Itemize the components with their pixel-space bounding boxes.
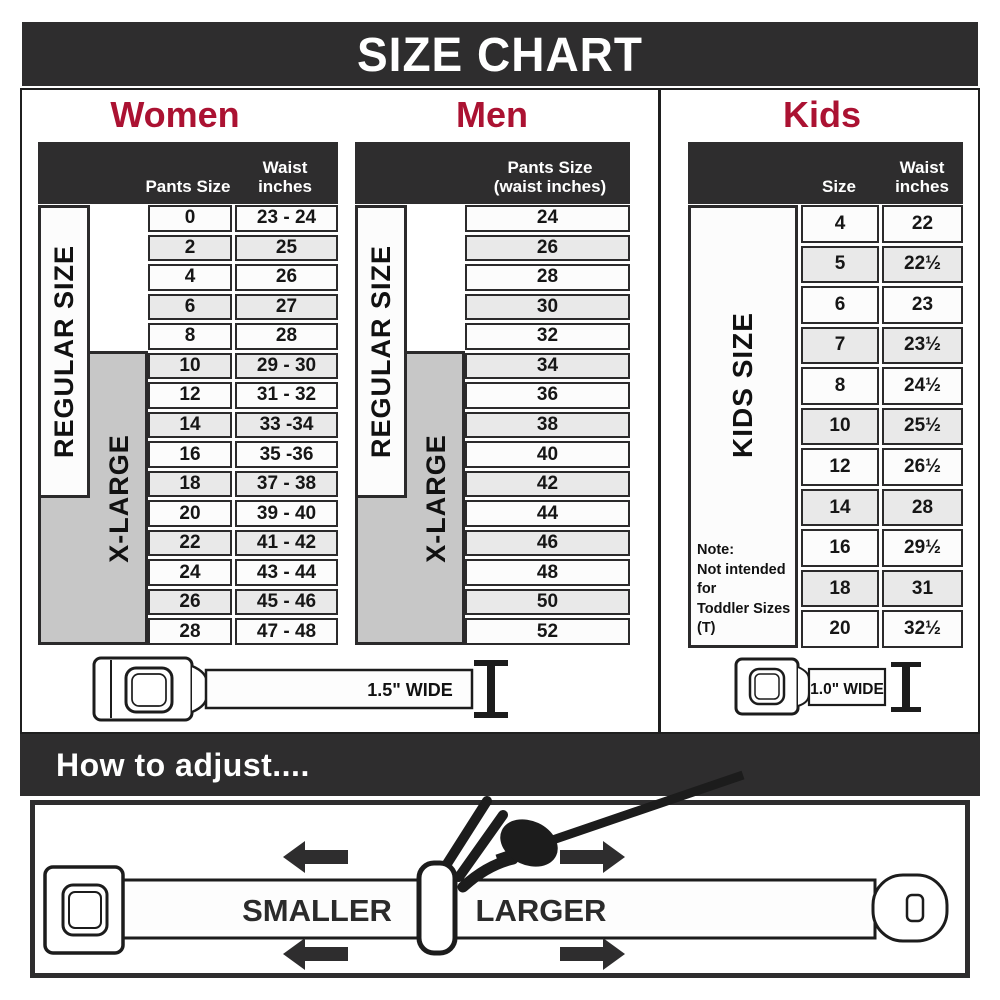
size-cell: 7 [801,327,879,365]
belt-strap: 1.0" WIDE [809,669,885,705]
women-pants-size-header: Pants Size [138,177,238,197]
arrow-left-icon [283,938,348,970]
pants-size-cell: 34 [465,353,630,380]
men-table-row: 36 [465,382,630,409]
waist-cell: 41 - 42 [235,530,338,557]
women-table-row: 20 39 - 40 [148,500,338,527]
waist-cell: 31 [882,570,963,608]
pants-size-cell: 20 [148,500,232,527]
pants-size-cell: 12 [148,382,232,409]
waist-cell: 29½ [882,529,963,567]
men-table-row: 40 [465,441,630,468]
waist-cell: 39 - 40 [235,500,338,527]
pants-size-cell: 0 [148,205,232,232]
men-table-rows: 24 26 28 30 32 34 36 38 40 42 44 46 48 5… [465,205,630,645]
women-table-row: 22 41 - 42 [148,530,338,557]
size-cell: 16 [801,529,879,567]
pants-size-cell: 2 [148,235,232,262]
waist-cell: 45 - 46 [235,589,338,616]
pants-size-cell: 38 [465,412,630,439]
adjust-illustration: SMALLER LARGER [35,767,965,973]
pants-size-cell: 8 [148,323,232,350]
size-cell: 14 [801,489,879,527]
waist-cell: 28 [235,323,338,350]
size-cell: 12 [801,448,879,486]
men-table-row: 38 [465,412,630,439]
size-cell: 20 [801,610,879,648]
kids-size-label: KIDS SIZE [688,205,798,565]
men-xlarge-label: X-LARGE [407,351,465,645]
waist-cell: 29 - 30 [235,353,338,380]
pants-size-cell: 14 [148,412,232,439]
waist-cell: 31 - 32 [235,382,338,409]
pants-size-cell: 24 [148,559,232,586]
kids-title: Kids [722,94,922,136]
kids-table-row: 14 28 [801,489,963,527]
men-table-row: 52 [465,618,630,645]
kids-table-row: 18 31 [801,570,963,608]
men-table-row: 26 [465,235,630,262]
waist-cell: 25½ [882,408,963,446]
pants-size-cell: 36 [465,382,630,409]
pants-size-cell: 48 [465,559,630,586]
pants-size-cell: 44 [465,500,630,527]
kids-table-row: 5 22½ [801,246,963,284]
seatbelt-buckle-icon [45,867,123,953]
kids-belt-illustration: 1.0" WIDE [733,655,948,721]
larger-label: LARGER [476,893,607,928]
women-table-row: 18 37 - 38 [148,471,338,498]
kids-belt-width-label: 1.0" WIDE [810,681,884,698]
seatbelt-buckle-icon [94,658,207,720]
men-title: Men [392,94,592,136]
women-table-row: 28 47 - 48 [148,618,338,645]
size-chart-banner: SIZE CHART [22,22,978,86]
width-ibeam-icon [891,662,921,712]
waist-cell: 25 [235,235,338,262]
men-pants-size-header: Pants Size (waist inches) [475,158,625,197]
kids-table-row: 16 29½ [801,529,963,567]
pants-size-cell: 24 [465,205,630,232]
waist-cell: 23½ [882,327,963,365]
women-table-header: Pants Size Waist inches [38,142,338,204]
waist-cell: 35 -36 [235,441,338,468]
waist-cell: 22½ [882,246,963,284]
kids-table-row: 4 22 [801,205,963,243]
pants-size-cell: 32 [465,323,630,350]
women-title: Women [75,94,275,136]
pants-size-cell: 30 [465,294,630,321]
pants-size-cell: 28 [465,264,630,291]
women-table-row: 26 45 - 46 [148,589,338,616]
women-xlarge-label: X-LARGE [90,351,148,645]
women-table-row: 8 28 [148,323,338,350]
adjust-illustration-box: SMALLER LARGER [30,800,970,978]
pants-size-cell: 16 [148,441,232,468]
width-ibeam-icon [474,660,508,718]
women-table-row: 12 31 - 32 [148,382,338,409]
kids-table-rows: 4 22 5 22½ 6 23 7 23½ 8 24½ 10 25½ 12 26… [801,205,963,648]
size-cell: 6 [801,286,879,324]
adult-belt-illustration: 1.5" WIDE [90,650,520,730]
pants-size-cell: 42 [465,471,630,498]
kids-table-row: 8 24½ [801,367,963,405]
men-table-row: 34 [465,353,630,380]
pants-size-cell: 40 [465,441,630,468]
pants-size-cell: 4 [148,264,232,291]
men-table-header: Pants Size (waist inches) [355,142,630,204]
women-regular-box: REGULAR SIZE [38,205,90,498]
waist-cell: 27 [235,294,338,321]
women-regular-label: REGULAR SIZE [49,245,80,458]
arrow-right-icon [560,938,625,970]
seatbelt-buckle-icon [736,659,809,714]
kids-table-row: 12 26½ [801,448,963,486]
pants-size-cell: 46 [465,530,630,557]
women-table-row: 6 27 [148,294,338,321]
belt-strap: 1.5" WIDE [206,670,472,708]
men-table-row: 28 [465,264,630,291]
men-regular-label: REGULAR SIZE [366,245,397,458]
women-table-row: 0 23 - 24 [148,205,338,232]
men-table-row: 24 [465,205,630,232]
waist-cell: 37 - 38 [235,471,338,498]
pants-size-cell: 52 [465,618,630,645]
kids-table-header: Size Waist inches [688,142,963,204]
waist-cell: 47 - 48 [235,618,338,645]
size-cell: 10 [801,408,879,446]
women-table-row: 14 33 -34 [148,412,338,439]
pants-size-cell: 10 [148,353,232,380]
men-table-row: 30 [465,294,630,321]
men-table-row: 32 [465,323,630,350]
pants-size-cell: 26 [465,235,630,262]
men-table-row: 48 [465,559,630,586]
waist-cell: 23 - 24 [235,205,338,232]
pants-size-cell: 28 [148,618,232,645]
women-table-row: 16 35 -36 [148,441,338,468]
waist-cell: 24½ [882,367,963,405]
kids-table-row: 10 25½ [801,408,963,446]
waist-cell: 32½ [882,610,963,648]
waist-cell: 33 -34 [235,412,338,439]
women-waist-header: Waist inches [235,158,335,197]
arrow-left-icon [283,841,348,873]
men-table-row: 42 [465,471,630,498]
hand-icon [445,801,565,887]
smaller-label: SMALLER [242,893,392,928]
adult-belt-width-label: 1.5" WIDE [367,680,453,700]
women-table-row: 4 26 [148,264,338,291]
kids-table-row: 7 23½ [801,327,963,365]
size-chart-page: SIZE CHART Women Men Kids Pants Size Wai… [0,0,1000,1000]
waist-cell: 28 [882,489,963,527]
men-table-row: 46 [465,530,630,557]
size-cell: 8 [801,367,879,405]
women-table-row: 24 43 - 44 [148,559,338,586]
belt-slider [419,863,455,953]
size-cell: 18 [801,570,879,608]
men-table-row: 50 [465,589,630,616]
pants-size-cell: 18 [148,471,232,498]
waist-cell: 26 [235,264,338,291]
waist-cell: 26½ [882,448,963,486]
women-table-rows: 0 23 - 24 2 25 4 26 6 27 8 28 10 29 - 30… [148,205,338,645]
pants-size-cell: 26 [148,589,232,616]
size-cell: 5 [801,246,879,284]
pants-size-cell: 6 [148,294,232,321]
waist-cell: 43 - 44 [235,559,338,586]
kids-table-row: 6 23 [801,286,963,324]
women-table-row: 2 25 [148,235,338,262]
kids-waist-header: Waist inches [872,158,972,197]
waist-cell: 23 [882,286,963,324]
arrow-right-icon [560,841,625,873]
women-table-row: 10 29 - 30 [148,353,338,380]
page-title: SIZE CHART [357,26,643,83]
section-divider [658,88,661,734]
size-cell: 4 [801,205,879,243]
belt-tip [873,875,947,941]
waist-cell: 22 [882,205,963,243]
men-table-row: 44 [465,500,630,527]
pants-size-cell: 50 [465,589,630,616]
pants-size-cell: 22 [148,530,232,557]
kids-table-row: 20 32½ [801,610,963,648]
men-regular-box: REGULAR SIZE [355,205,407,498]
